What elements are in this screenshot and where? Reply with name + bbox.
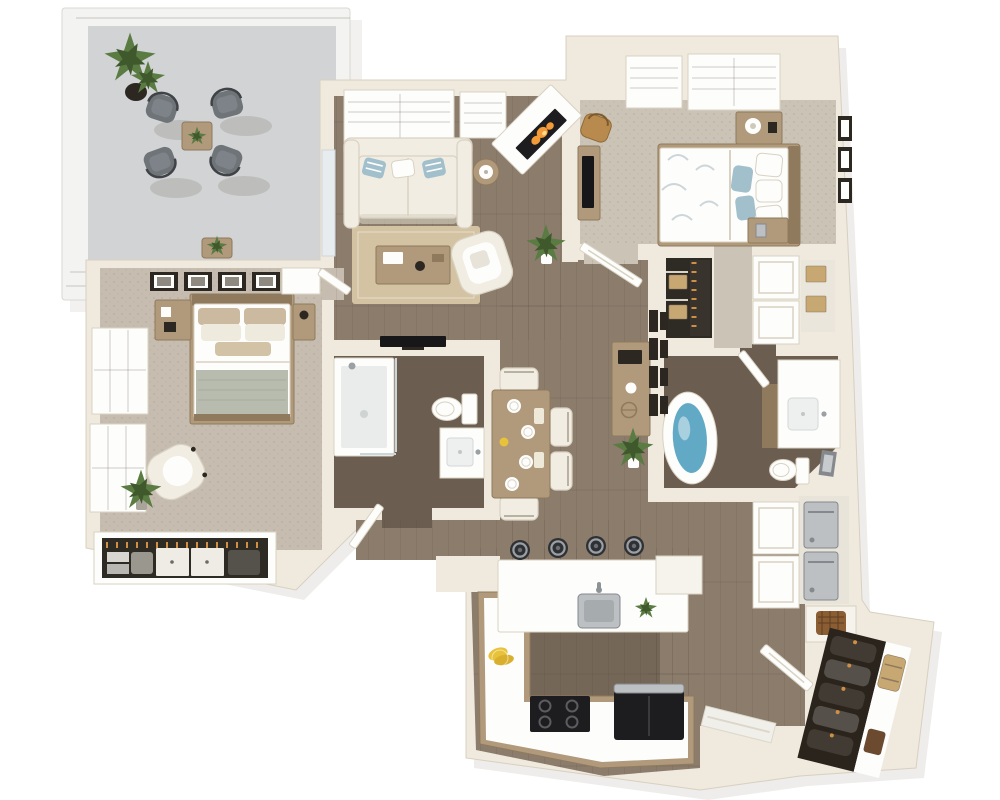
window [460,92,506,138]
blue-pillow [735,195,757,221]
shower-drain [360,410,368,418]
clock [161,307,171,317]
place-setting [505,477,519,491]
tray [618,350,642,364]
bedroom2-desk [578,146,600,220]
dryer [804,552,838,600]
faucet [821,411,826,416]
dining-chair-south [500,496,538,520]
decor [768,122,777,133]
dining-chair-east-1 [550,408,572,446]
patterned-pillow [244,308,286,325]
balcony-sliding-door [322,150,335,256]
decor [756,224,766,237]
desk-tv [582,156,594,208]
toilet-bowl [770,460,797,481]
master-nightstand-east [293,304,315,340]
blue-pillow [730,165,753,194]
nightstand-north [736,112,782,144]
nightstand-south [748,218,788,243]
round-decor [626,383,637,394]
shower-tray [341,366,387,448]
refrigerator [614,684,684,740]
tray [383,252,403,264]
headboard [788,146,800,244]
folded-linens [107,552,129,562]
sofa [344,138,472,228]
chair-shadow [218,176,270,196]
folded-linens [107,564,129,574]
shower [334,358,396,456]
napkin [534,408,544,424]
lamp [300,311,309,320]
bedroom2-wall-frames [838,116,852,203]
floorplan-stage: 3D isometric rendering of a two-bedroom,… [0,0,1000,800]
bedroom2-windows [626,54,780,110]
vanity-drawers [762,384,778,448]
master-closet [94,532,276,584]
toilet-tank [462,394,477,424]
books [432,254,444,262]
patterned-pillow [198,308,240,325]
place-setting [521,425,535,439]
drawer-knob [205,560,209,564]
place-setting [507,399,521,413]
chair-shadow [220,116,272,136]
walk-in-closet [666,258,712,338]
plate [595,707,609,717]
master-bed [190,294,294,424]
decor [164,322,176,332]
faucet [475,449,480,454]
storage-box [669,305,687,319]
coffee-table [376,246,450,284]
bedroom2-corridor-floor [714,244,752,348]
footboard [194,414,290,421]
place-setting [519,455,533,469]
white-pillow [755,153,783,178]
storage-box [669,275,687,289]
cooktop [530,696,590,732]
window [626,56,682,108]
white-dresser [282,268,320,294]
storage-bags [228,550,260,575]
fridge-top [614,684,684,693]
dining-chair-north [500,368,538,392]
peninsula-island [498,556,702,632]
flower-vase [500,438,509,447]
vanity-1 [440,428,484,478]
clothes-pile [131,552,153,574]
sink-basin [584,600,614,622]
kitchen-pony-wall [436,556,500,592]
floorplan-render [0,0,1000,800]
dining-chair-east-2 [550,452,572,490]
master-nightstand-west [155,300,191,340]
shelf-closet [801,260,835,332]
tv-stand [402,347,424,350]
washer [804,502,838,548]
dining-table [492,390,550,498]
side-table-lamp [473,159,499,185]
storage-box [806,266,826,282]
vase [415,261,425,271]
patio-table [182,122,212,150]
sink-drain [458,450,462,454]
sink-drain [801,412,805,416]
window [344,90,454,142]
toilet-tank [796,458,809,484]
plant-stand-table [202,236,232,258]
white-pillow [245,324,285,341]
drawer-knob [170,560,174,564]
storage-box [806,296,826,312]
napkin [534,452,544,468]
white-pillow [391,159,415,179]
chair-shadow [150,178,202,198]
shower-head [349,363,356,370]
accent-pillow [215,342,271,356]
tv-screen [380,336,446,347]
sage-throw [196,370,288,414]
balcony [62,8,350,300]
white-pillow [756,180,782,202]
sideboard [612,342,650,436]
island-column [656,556,702,594]
white-pillow [201,324,241,341]
